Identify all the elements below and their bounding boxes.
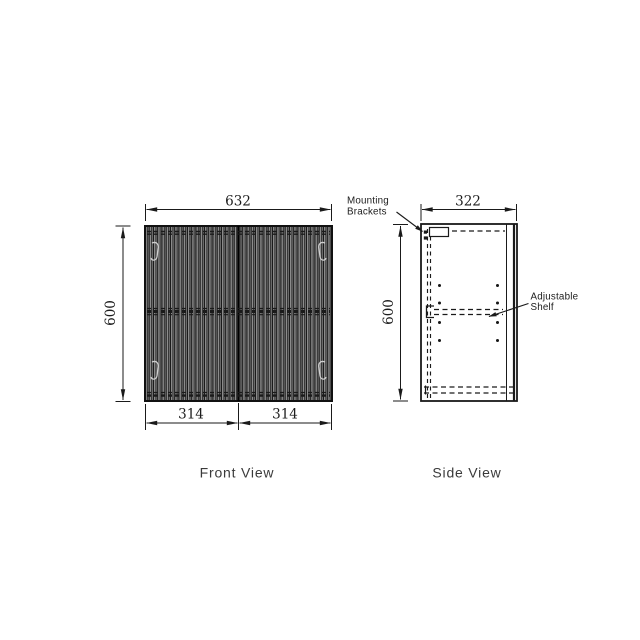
front-dim-width-label: 632 bbox=[225, 194, 251, 210]
front-view: 632 600 314 314 Front View bbox=[103, 194, 332, 481]
side-bottom-hidden-lines bbox=[424, 386, 513, 395]
cabinet-drawing: 632 600 314 314 Front View bbox=[0, 0, 640, 640]
front-dim-doors: 314 314 bbox=[146, 403, 332, 430]
side-dim-depth-label: 322 bbox=[455, 194, 481, 210]
side-door-hidden-lines bbox=[428, 229, 431, 398]
front-dim-height: 600 bbox=[103, 226, 131, 402]
shelf-pin-holes bbox=[438, 284, 499, 342]
side-dim-height-label: 600 bbox=[381, 299, 397, 325]
adjustable-shelf-label-line2: Shelf bbox=[531, 302, 554, 313]
adjustable-shelf-label-line1: Adjustable bbox=[531, 292, 579, 303]
side-view-title: Side View bbox=[432, 465, 501, 481]
side-dim-depth: 322 bbox=[421, 194, 517, 222]
front-dim-door-right-label: 314 bbox=[272, 407, 298, 423]
front-dim-width: 632 bbox=[146, 194, 332, 222]
front-dim-door-left-label: 314 bbox=[178, 407, 204, 423]
mounting-brackets-label-line2: Brackets bbox=[347, 207, 387, 218]
technical-drawing-page: 632 600 314 314 Front View bbox=[0, 0, 640, 640]
adjustable-shelf-annotation: Adjustable Shelf bbox=[489, 292, 579, 317]
mounting-brackets-annotation: Mounting Brackets bbox=[347, 196, 423, 232]
mounting-brackets-label-line1: Mounting bbox=[347, 196, 389, 207]
front-dim-height-label: 600 bbox=[103, 300, 119, 326]
side-dim-height: 600 bbox=[381, 225, 408, 402]
front-view-title: Front View bbox=[200, 465, 275, 481]
side-view: 322 600 Mounting Brackets Adjustable She… bbox=[347, 194, 579, 481]
